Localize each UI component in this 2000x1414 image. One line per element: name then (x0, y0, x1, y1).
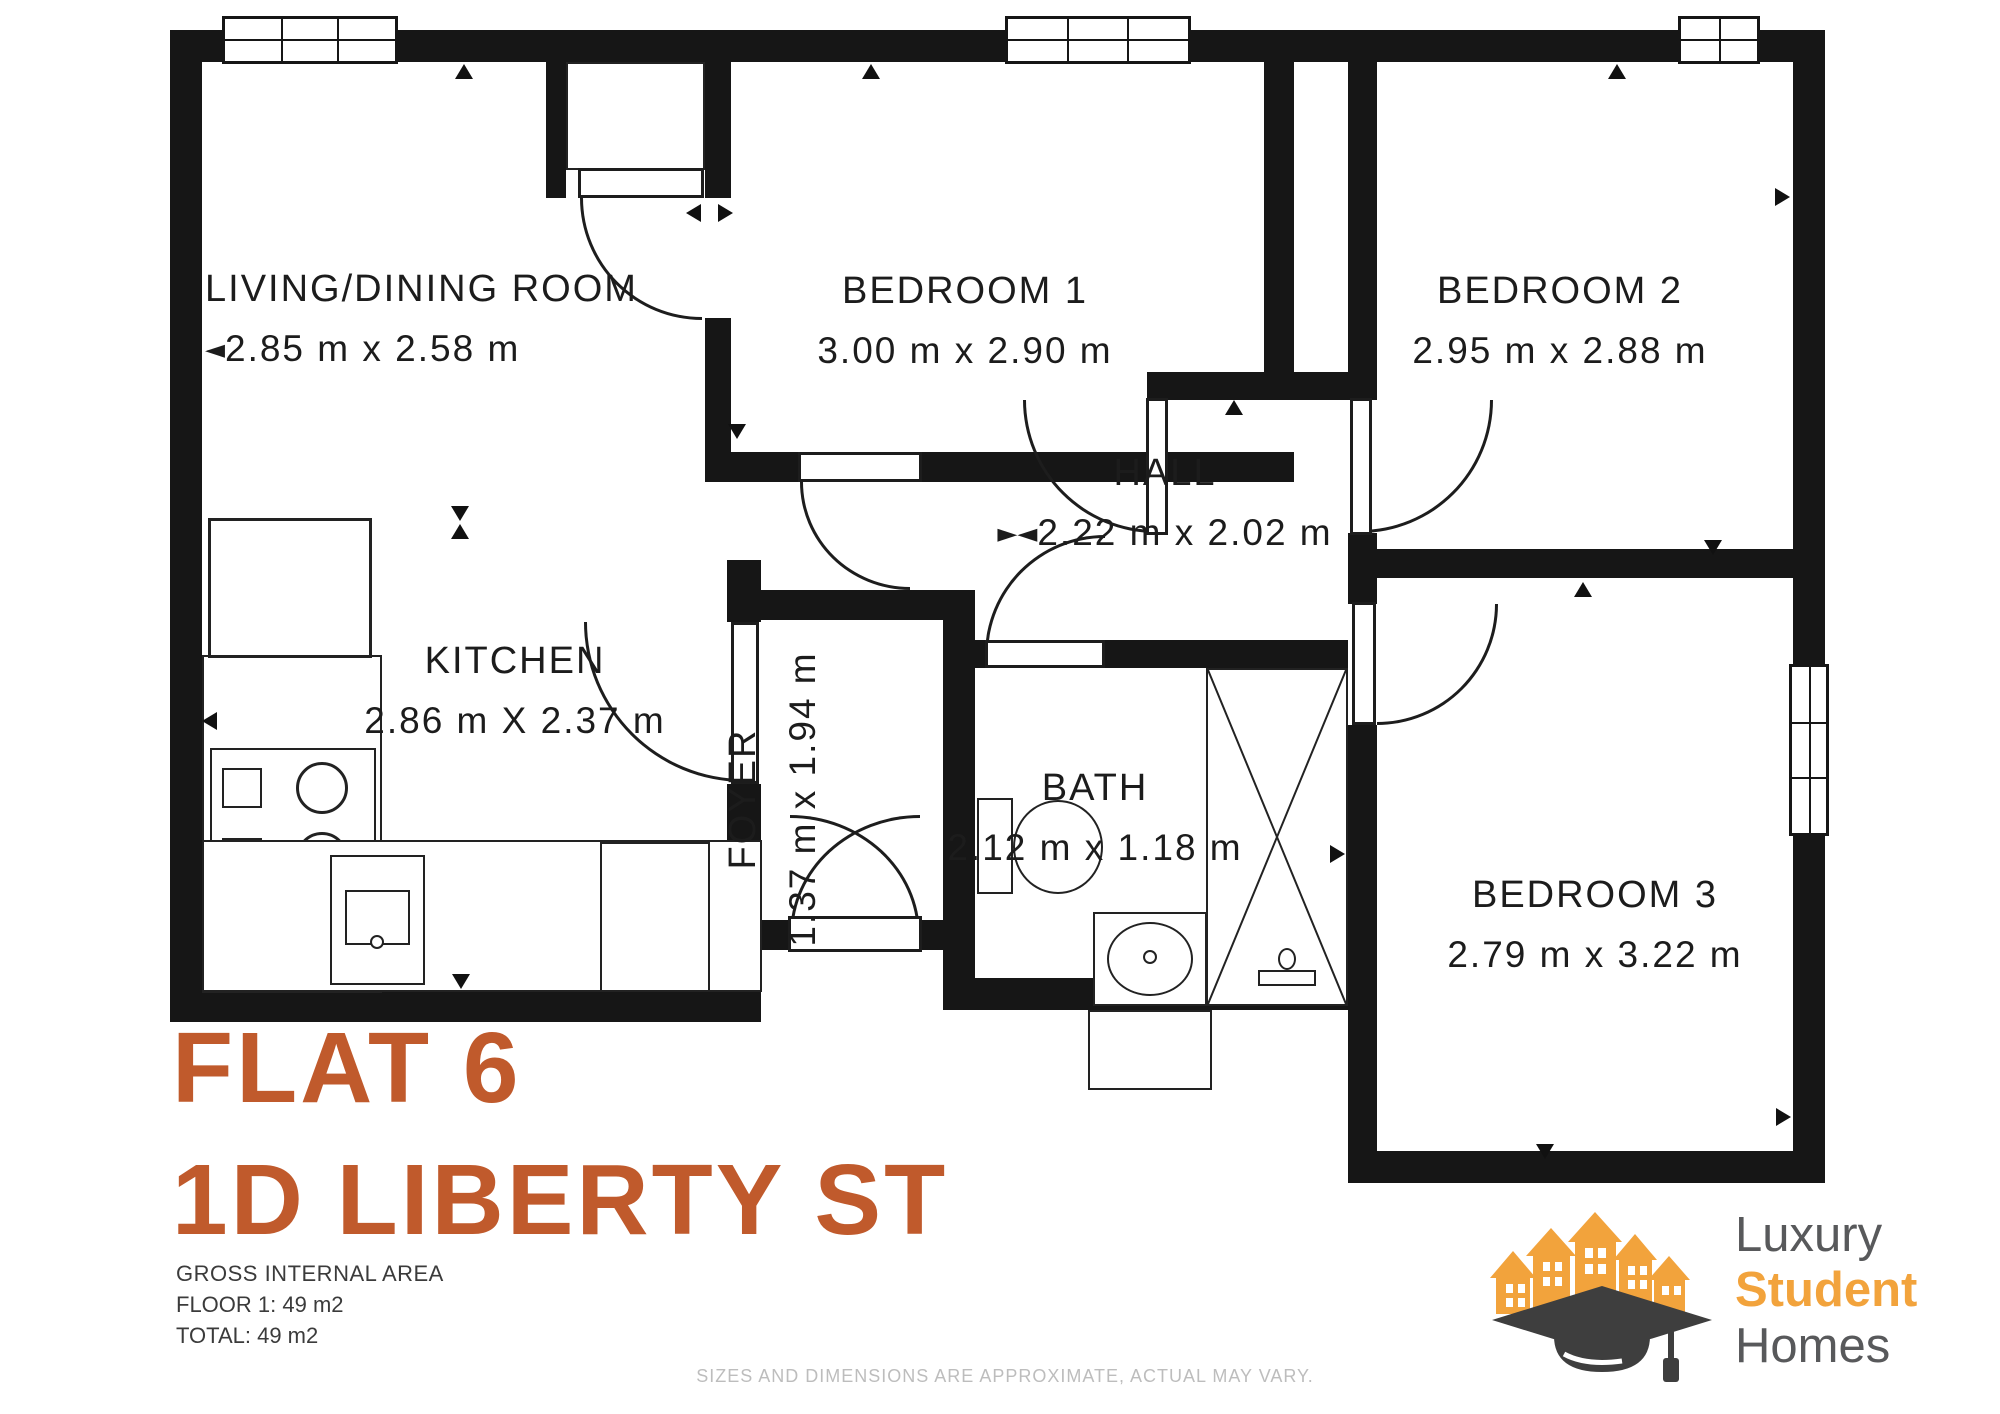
closet-alcove (566, 62, 705, 170)
door-leaf (578, 168, 704, 198)
door-leaf (798, 452, 922, 482)
floorplan-canvas: LIVING/DINING ROOM ◄2.85 m x 2.58 m BEDR… (0, 0, 2000, 1414)
basin-drain (1143, 950, 1157, 964)
dim-marker-icon: ►◄ (997, 519, 1037, 549)
hob-burner (296, 762, 348, 814)
wall-right (1793, 30, 1825, 1183)
room-label-living: LIVING/DINING ROOM ◄2.85 m x 2.58 m (205, 266, 685, 372)
area-summary: GROSS INTERNAL AREA FLOOR 1: 49 m2 TOTAL… (176, 1258, 444, 1352)
marker-triangle (451, 524, 469, 539)
room-name: KITCHEN (300, 638, 730, 686)
room-dims: 2.12 m x 1.18 m (900, 825, 1290, 871)
window-mullion (1719, 19, 1721, 61)
wall-bedroom3-bottom (1348, 1151, 1825, 1183)
marker-triangle (455, 64, 473, 79)
room-name: BATH (900, 765, 1290, 813)
shower-head-icon (1278, 948, 1296, 970)
marker-triangle (202, 712, 217, 730)
sink-tap (370, 935, 384, 949)
door-arc (1377, 604, 1498, 725)
title-line2: 1D LIBERTY ST (172, 1134, 948, 1266)
room-name: LIVING/DINING ROOM (205, 266, 685, 314)
window-living (222, 16, 398, 64)
room-dims-text: 2.22 m x 2.02 m (1037, 512, 1332, 553)
room-dims: 2.79 m x 3.22 m (1380, 932, 1810, 978)
marker-triangle (1330, 845, 1345, 863)
room-label-hall: HALL ►◄2.22 m x 2.02 m (930, 450, 1400, 556)
logo-wordmark: Luxury Student Homes (1735, 1208, 1917, 1374)
marker-triangle (452, 974, 470, 989)
room-dims: ◄2.85 m x 2.58 m (205, 326, 685, 372)
room-label-bedroom2: BEDROOM 2 2.95 m x 2.88 m (1330, 268, 1790, 374)
area-total: TOTAL: 49 m2 (176, 1320, 444, 1351)
window-mullion (337, 19, 339, 61)
window-mullion (1792, 722, 1826, 724)
window-mullion (225, 39, 395, 41)
logo-word-luxury: Luxury (1735, 1208, 1917, 1263)
window-mullion (1792, 777, 1826, 779)
dim-marker-icon: ◄ (205, 335, 225, 365)
marker-triangle (1775, 188, 1790, 206)
wall-foyer-top (761, 590, 943, 620)
wall-foyer-left-top (727, 560, 761, 622)
door-arc (800, 482, 910, 590)
fridge-symbol (208, 518, 372, 658)
room-name: FOYER (720, 644, 768, 954)
vanity-tray (1088, 1010, 1212, 1090)
title-line1: FLAT 6 (172, 1002, 948, 1134)
wall-bed1-right (1264, 62, 1294, 400)
window-mullion (1127, 19, 1129, 61)
marker-triangle (862, 64, 880, 79)
marker-triangle (1608, 64, 1626, 79)
window-mullion (1008, 39, 1188, 41)
wall-closet-top (1147, 372, 1377, 400)
marker-triangle (1574, 582, 1592, 597)
area-heading: GROSS INTERNAL AREA (176, 1258, 444, 1289)
room-label-bath: BATH 2.12 m x 1.18 m (900, 765, 1290, 871)
wall-bed3-left (1348, 725, 1377, 1151)
logo-word-student: Student (1735, 1263, 1917, 1318)
room-label-bedroom1: BEDROOM 1 3.00 m x 2.90 m (730, 268, 1200, 374)
luxury-student-homes-logo-icon (1482, 1198, 1722, 1398)
window-mullion (1067, 19, 1069, 61)
area-floor1: FLOOR 1: 49 m2 (176, 1289, 444, 1320)
marker-triangle (1225, 400, 1243, 415)
door-leaf (985, 640, 1105, 668)
hob-plate (222, 768, 262, 808)
wall-bath-top-left (943, 640, 985, 668)
marker-triangle (1536, 1144, 1554, 1159)
room-dims-text: 2.85 m x 2.58 m (225, 328, 520, 369)
room-dims: 2.86 m X 2.37 m (300, 698, 730, 744)
wall-left (170, 30, 202, 1022)
room-name: HALL (930, 450, 1400, 498)
dishwasher-symbol (600, 842, 710, 992)
wall-alcove-stub (546, 62, 566, 198)
window-mullion (1809, 667, 1811, 833)
door-leaf (1352, 602, 1376, 725)
marker-triangle (1704, 540, 1722, 555)
window-bedroom2 (1678, 16, 1760, 64)
window-bedroom3 (1789, 664, 1829, 836)
wall-top (170, 30, 1825, 62)
room-dims: 2.95 m x 2.88 m (1330, 328, 1790, 374)
room-name: BEDROOM 2 (1330, 268, 1790, 316)
wall-bed1-bottom-a (705, 452, 800, 482)
disclaimer-text: SIZES AND DIMENSIONS ARE APPROXIMATE, AC… (600, 1366, 1410, 1387)
wall-bath-top-right (1105, 640, 1348, 668)
room-label-kitchen: KITCHEN 2.86 m X 2.37 m (300, 638, 730, 744)
window-bedroom1 (1005, 16, 1191, 64)
room-label-bedroom3: BEDROOM 3 2.79 m x 3.22 m (1380, 872, 1810, 978)
room-label-foyer: FOYER 1.37 m x 1.94 m (720, 644, 870, 954)
room-dims: 3.00 m x 2.90 m (730, 328, 1200, 374)
page-title: FLAT 6 1D LIBERTY ST (172, 1002, 948, 1266)
room-dims: ►◄2.22 m x 2.02 m (930, 510, 1400, 556)
window-mullion (281, 19, 283, 61)
marker-triangle (728, 424, 746, 439)
marker-triangle (718, 204, 733, 222)
wall-living-bed1-upper (705, 62, 731, 198)
room-name: BEDROOM 1 (730, 268, 1200, 316)
marker-triangle (686, 204, 701, 222)
marker-triangle (1776, 1108, 1791, 1126)
room-dims: 1.37 m x 1.94 m (780, 644, 826, 954)
shower-head-base (1258, 970, 1316, 986)
marker-triangle (451, 506, 469, 521)
wall-bed2-bottom (1377, 549, 1825, 578)
logo-word-homes: Homes (1735, 1319, 1917, 1374)
room-name: BEDROOM 3 (1380, 872, 1810, 920)
